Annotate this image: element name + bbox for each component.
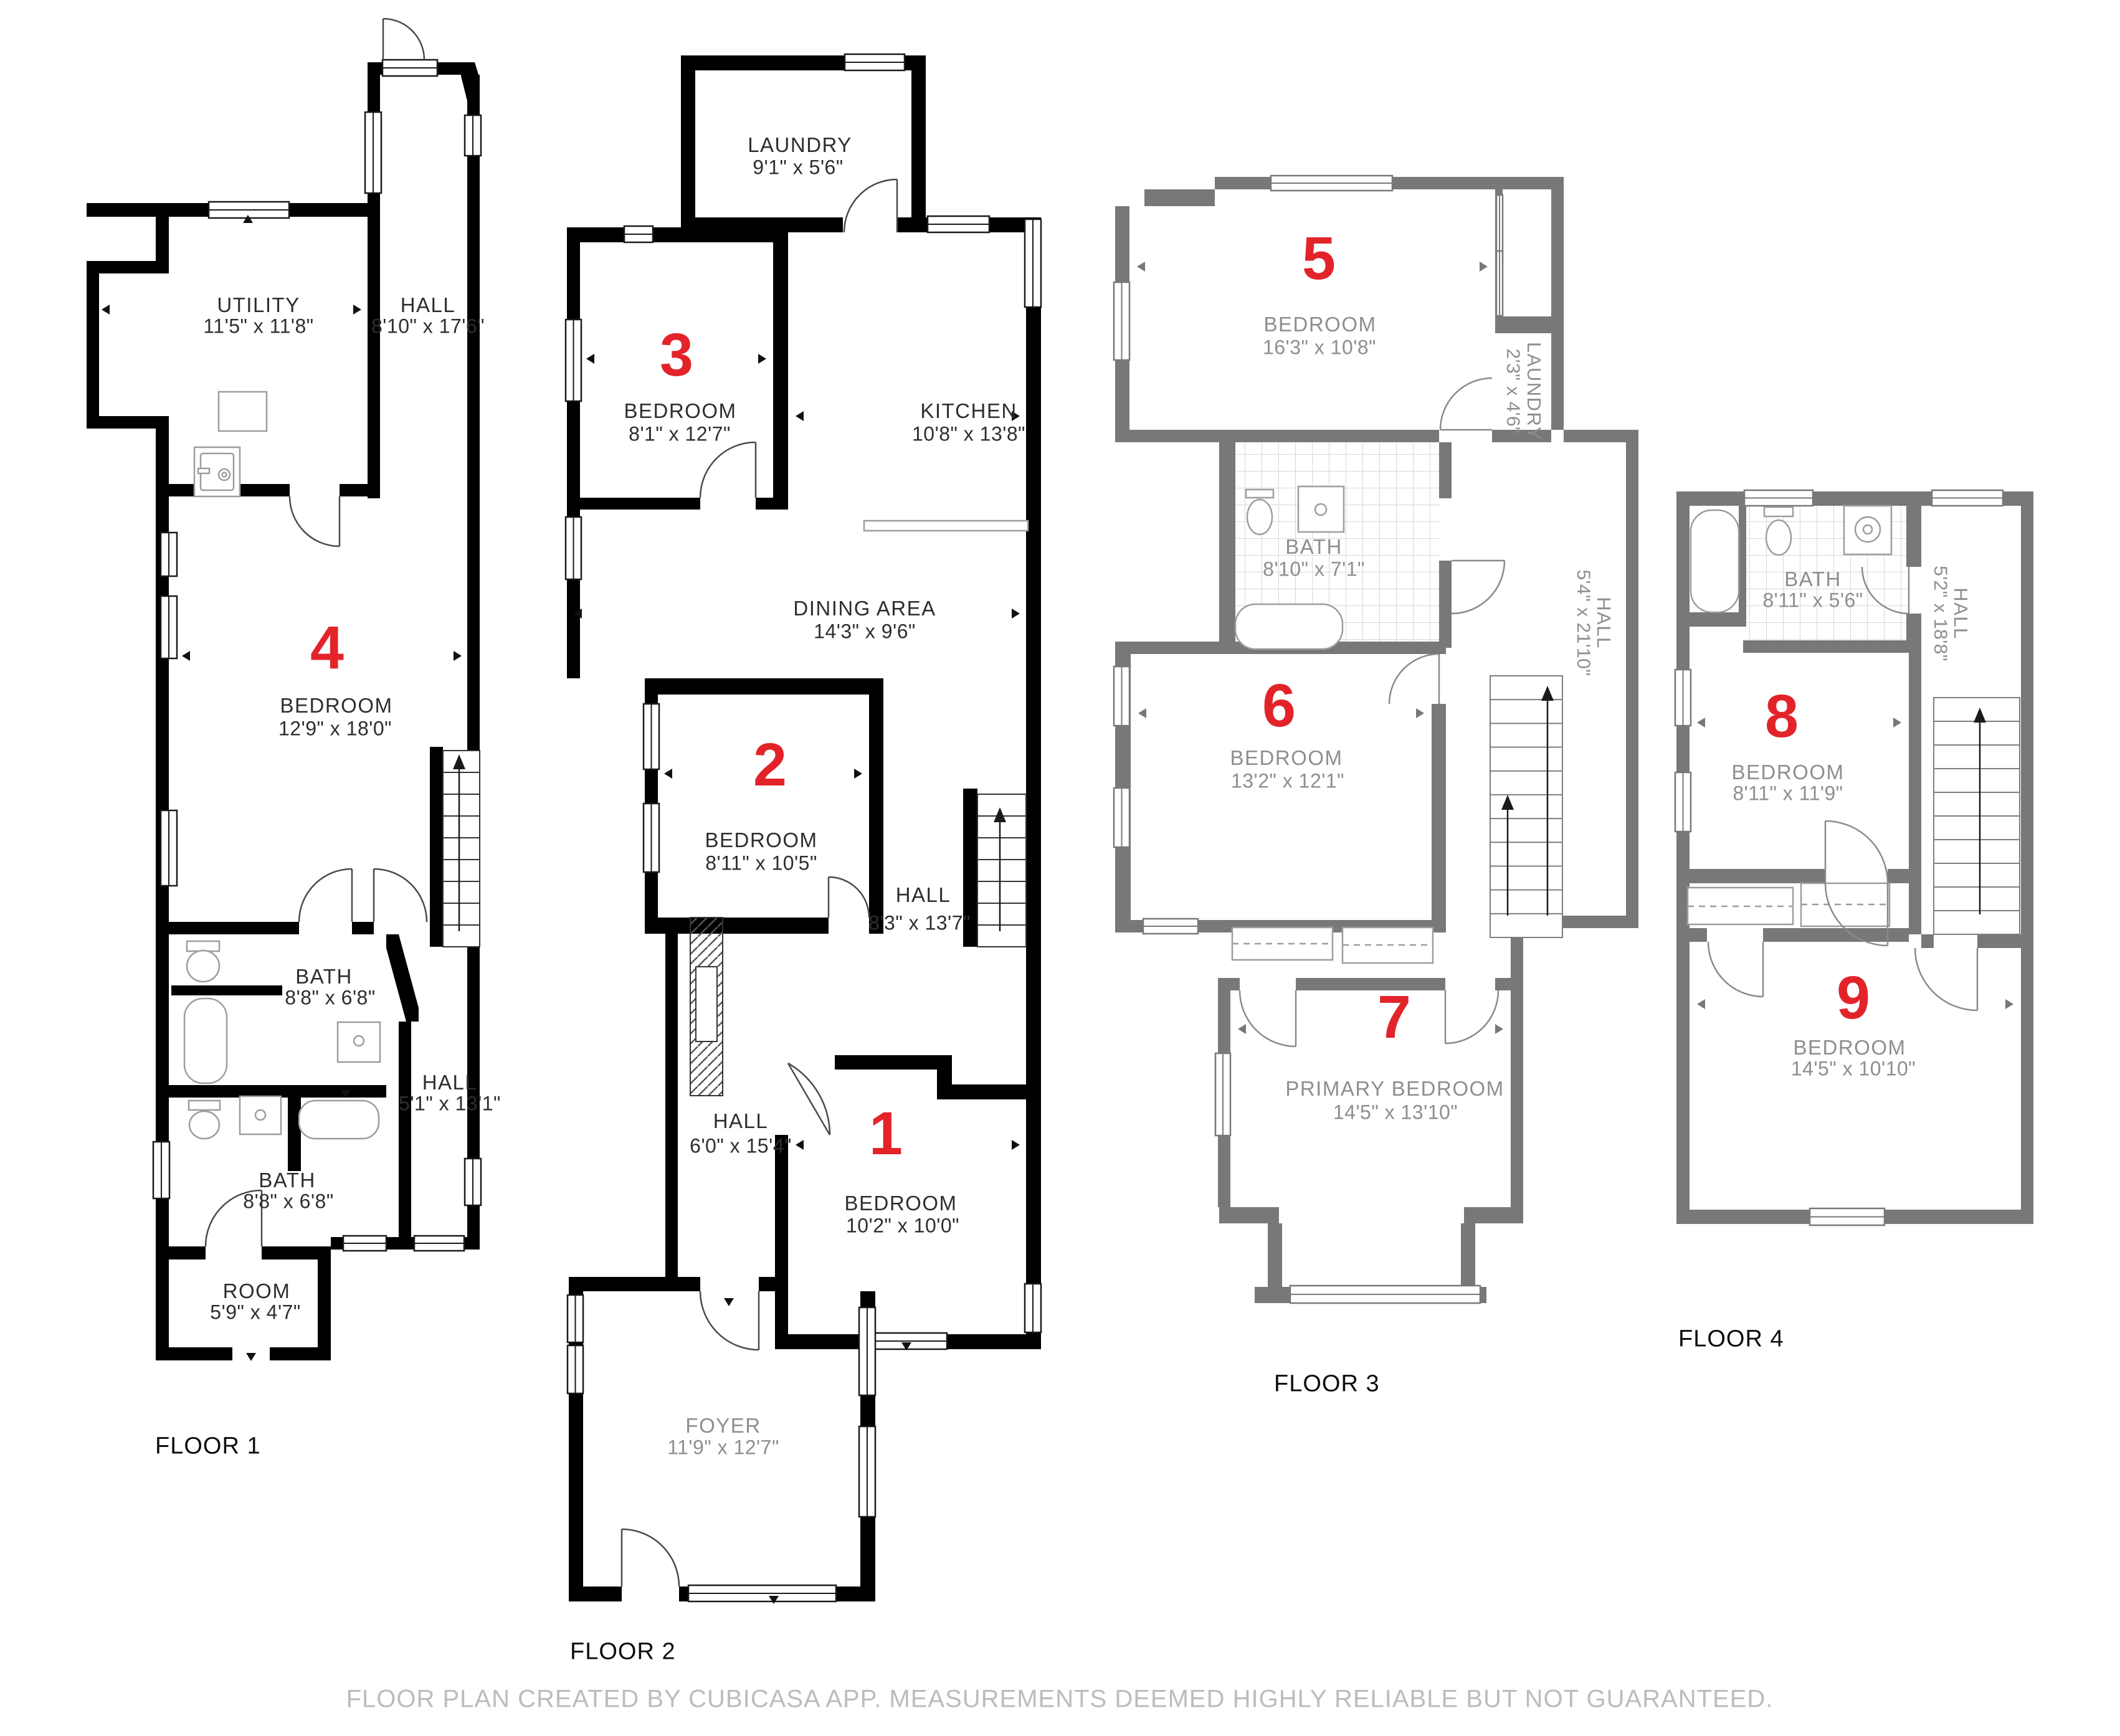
label-floor1-hall_upper-name: HALL	[401, 293, 456, 317]
label-floor4-caption: FLOOR 4	[1678, 1326, 1784, 1353]
label-floor2-laundry-dims: 9'1" x 5'6"	[753, 156, 843, 179]
label-floor2-bedroom1-dims: 10'2" x 10'0"	[846, 1215, 959, 1238]
label-floor2-bedroom2-dims: 8'11" x 10'5"	[705, 852, 817, 875]
label-floor1-bedroom-name: BEDROOM	[280, 694, 392, 718]
label-floor2-bedroom2-name: BEDROOM	[705, 828, 817, 852]
label-floor2-bedroom3-dims: 8'1" x 12'7"	[629, 423, 731, 446]
label-floor2-laundry-name: LAUNDRY	[748, 133, 852, 157]
label-floor1-room-name: ROOM	[223, 1279, 291, 1303]
label-floor1-utility-dims: 11'5" x 11'8"	[203, 315, 313, 338]
label-floor2-bedroom1-num: 1	[869, 1099, 903, 1169]
label-floor1-hall_lower-name: HALL	[422, 1071, 478, 1094]
label-floor3-bedroom6-dims: 13'2" x 12'1"	[1231, 770, 1344, 793]
label-floor3-caption: FLOOR 3	[1274, 1371, 1380, 1398]
label-floor3-bath-dims: 8'10" x 7'1"	[1263, 558, 1365, 581]
label-floor4-bedroom8-num: 8	[1765, 681, 1799, 751]
label-floor3-bedroom5-num: 5	[1302, 224, 1336, 293]
label-floor2-foyer-dims: 11'9" x 12'7"	[667, 1436, 779, 1459]
label-floor2-kitchen-name: KITCHEN	[920, 399, 1017, 423]
label-floor1-utility-name: UTILITY	[217, 293, 300, 317]
label-floor4-bedroom9-name: BEDROOM	[1793, 1036, 1906, 1060]
label-floor1-bath_upper-dims: 8'8" x 6'8"	[285, 987, 375, 1010]
label-floor2-kitchen-dims: 10'8" x 13'8"	[912, 423, 1025, 446]
label-floor2-dining-dims: 14'3" x 9'6"	[814, 620, 916, 643]
label-floor2-bedroom3-name: BEDROOM	[624, 399, 736, 423]
floor-plan-page: UTILITY11'5" x 11'8"HALL8'10" x 17'6"4BE…	[0, 0, 2120, 1736]
label-floor3-bedroom6-num: 6	[1262, 671, 1296, 741]
label-floor1-hall_lower-dims: 5'1" x 13'1"	[399, 1093, 501, 1116]
label-floor1-hall_upper-dims: 8'10" x 17'6"	[371, 315, 485, 338]
label-floor3-bedroom5-dims: 16'3" x 10'8"	[1263, 336, 1376, 359]
label-floor1-bath_lower-dims: 8'8" x 6'8"	[243, 1190, 333, 1213]
label-floor4-bedroom8-name: BEDROOM	[1731, 761, 1844, 784]
label-floor3-primary-num: 7	[1377, 982, 1411, 1052]
label-floor2-dining-name: DINING AREA	[793, 597, 936, 620]
label-floor4-hall-name: HALL	[1949, 587, 1972, 640]
label-floor4-hall-dims: 5'2" x 18'8"	[1929, 566, 1951, 662]
label-floor3-bedroom6-name: BEDROOM	[1230, 746, 1343, 770]
label-floor2-hall_right-name: HALL	[896, 883, 951, 907]
label-floor4-bedroom8-dims: 8'11" x 11'9"	[1733, 782, 1843, 805]
label-floor1-bedroom-num: 4	[310, 613, 344, 683]
label-floor1-bedroom-dims: 12'9" x 18'0"	[278, 718, 392, 741]
label-floor2-bedroom3-num: 3	[660, 320, 693, 390]
label-floor2-hall_center-name: HALL	[713, 1109, 769, 1133]
label-floor1-bath_lower-name: BATH	[259, 1169, 316, 1192]
label-floor3-bedroom5-name: BEDROOM	[1263, 313, 1376, 336]
label-disclaimer: FLOOR PLAN CREATED BY CUBICASA APP. MEAS…	[346, 1686, 1774, 1714]
label-floor2-caption: FLOOR 2	[570, 1639, 676, 1666]
label-floor1-bath_upper-name: BATH	[295, 965, 353, 989]
label-floor1-room-dims: 5'9" x 4'7"	[210, 1301, 300, 1324]
label-floor2-hall_right-dims: 8'3" x 13'7"	[868, 912, 971, 935]
label-floor3-primary-dims: 14'5" x 13'10"	[1333, 1101, 1458, 1124]
label-floor3-laundry-dims: 2'3" x 4'6"	[1502, 349, 1523, 434]
label-floor3-laundry-name: LAUNDRY	[1523, 342, 1545, 440]
label-floor4-bedroom9-dims: 14'5" x 10'10"	[1791, 1058, 1916, 1081]
label-floor2-foyer-name: FOYER	[685, 1414, 761, 1438]
label-floor4-bedroom9-num: 9	[1837, 963, 1870, 1033]
label-floor4-bath-name: BATH	[1784, 567, 1842, 591]
label-floor3-hall-name: HALL	[1592, 597, 1615, 649]
label-floor2-bedroom2-num: 2	[753, 730, 787, 800]
label-floor1-caption: FLOOR 1	[155, 1433, 261, 1460]
label-floor2-hall_center-dims: 6'0" x 15'4"	[690, 1135, 792, 1158]
label-floor2-bedroom1-name: BEDROOM	[844, 1192, 957, 1215]
label-floor3-primary-name: PRIMARY BEDROOM	[1285, 1077, 1504, 1101]
label-floor3-bath-name: BATH	[1285, 535, 1343, 559]
label-floor3-hall-dims: 5'4" x 21'10"	[1572, 569, 1594, 676]
labels-layer: UTILITY11'5" x 11'8"HALL8'10" x 17'6"4BE…	[0, 0, 2120, 1736]
label-floor4-bath-dims: 8'11" x 5'6"	[1762, 589, 1863, 612]
